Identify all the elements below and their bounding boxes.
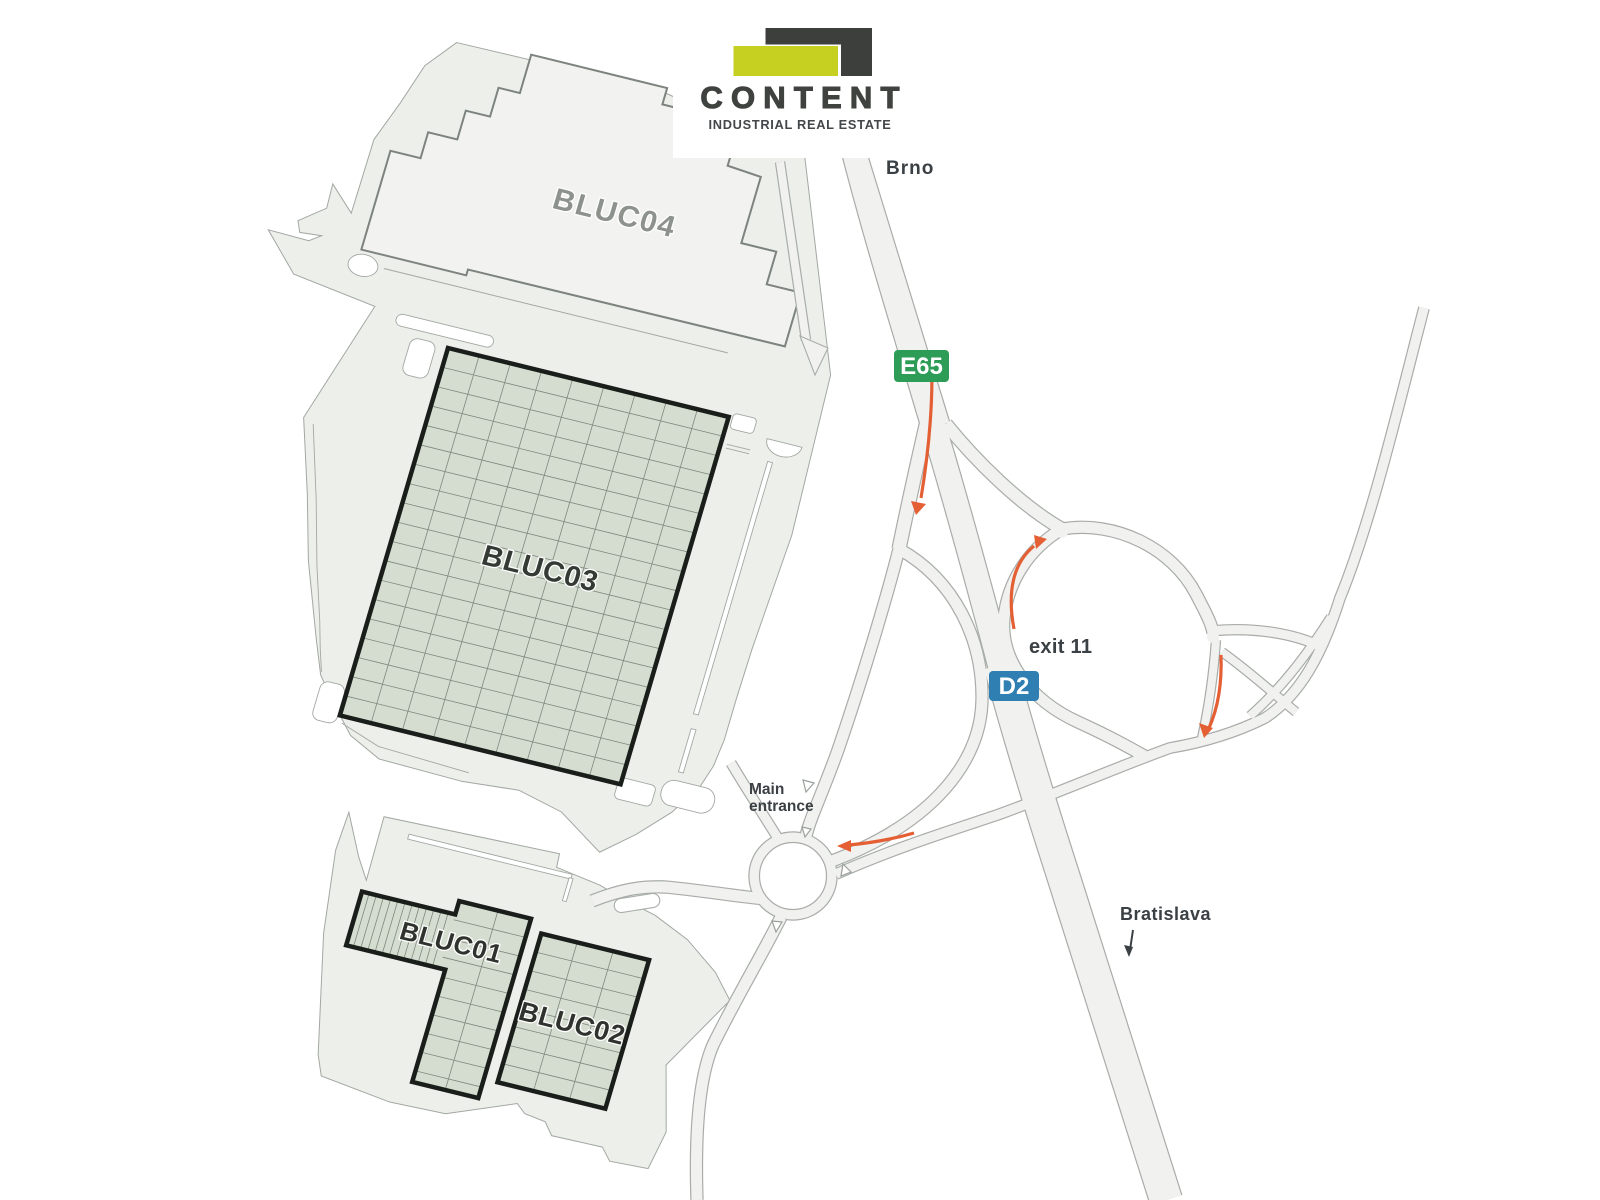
svg-text:E65: E65 xyxy=(900,353,943,380)
svg-text:CONTENT: CONTENT xyxy=(700,80,907,115)
svg-text:Main: Main xyxy=(749,781,784,798)
svg-text:INDUSTRIAL REAL ESTATE: INDUSTRIAL REAL ESTATE xyxy=(709,117,892,132)
svg-text:entrance: entrance xyxy=(749,798,814,815)
svg-text:Brno: Brno xyxy=(886,158,934,179)
svg-text:Bratislava: Bratislava xyxy=(1120,904,1212,924)
svg-text:D2: D2 xyxy=(999,673,1030,700)
svg-text:exit 11: exit 11 xyxy=(1029,636,1092,658)
